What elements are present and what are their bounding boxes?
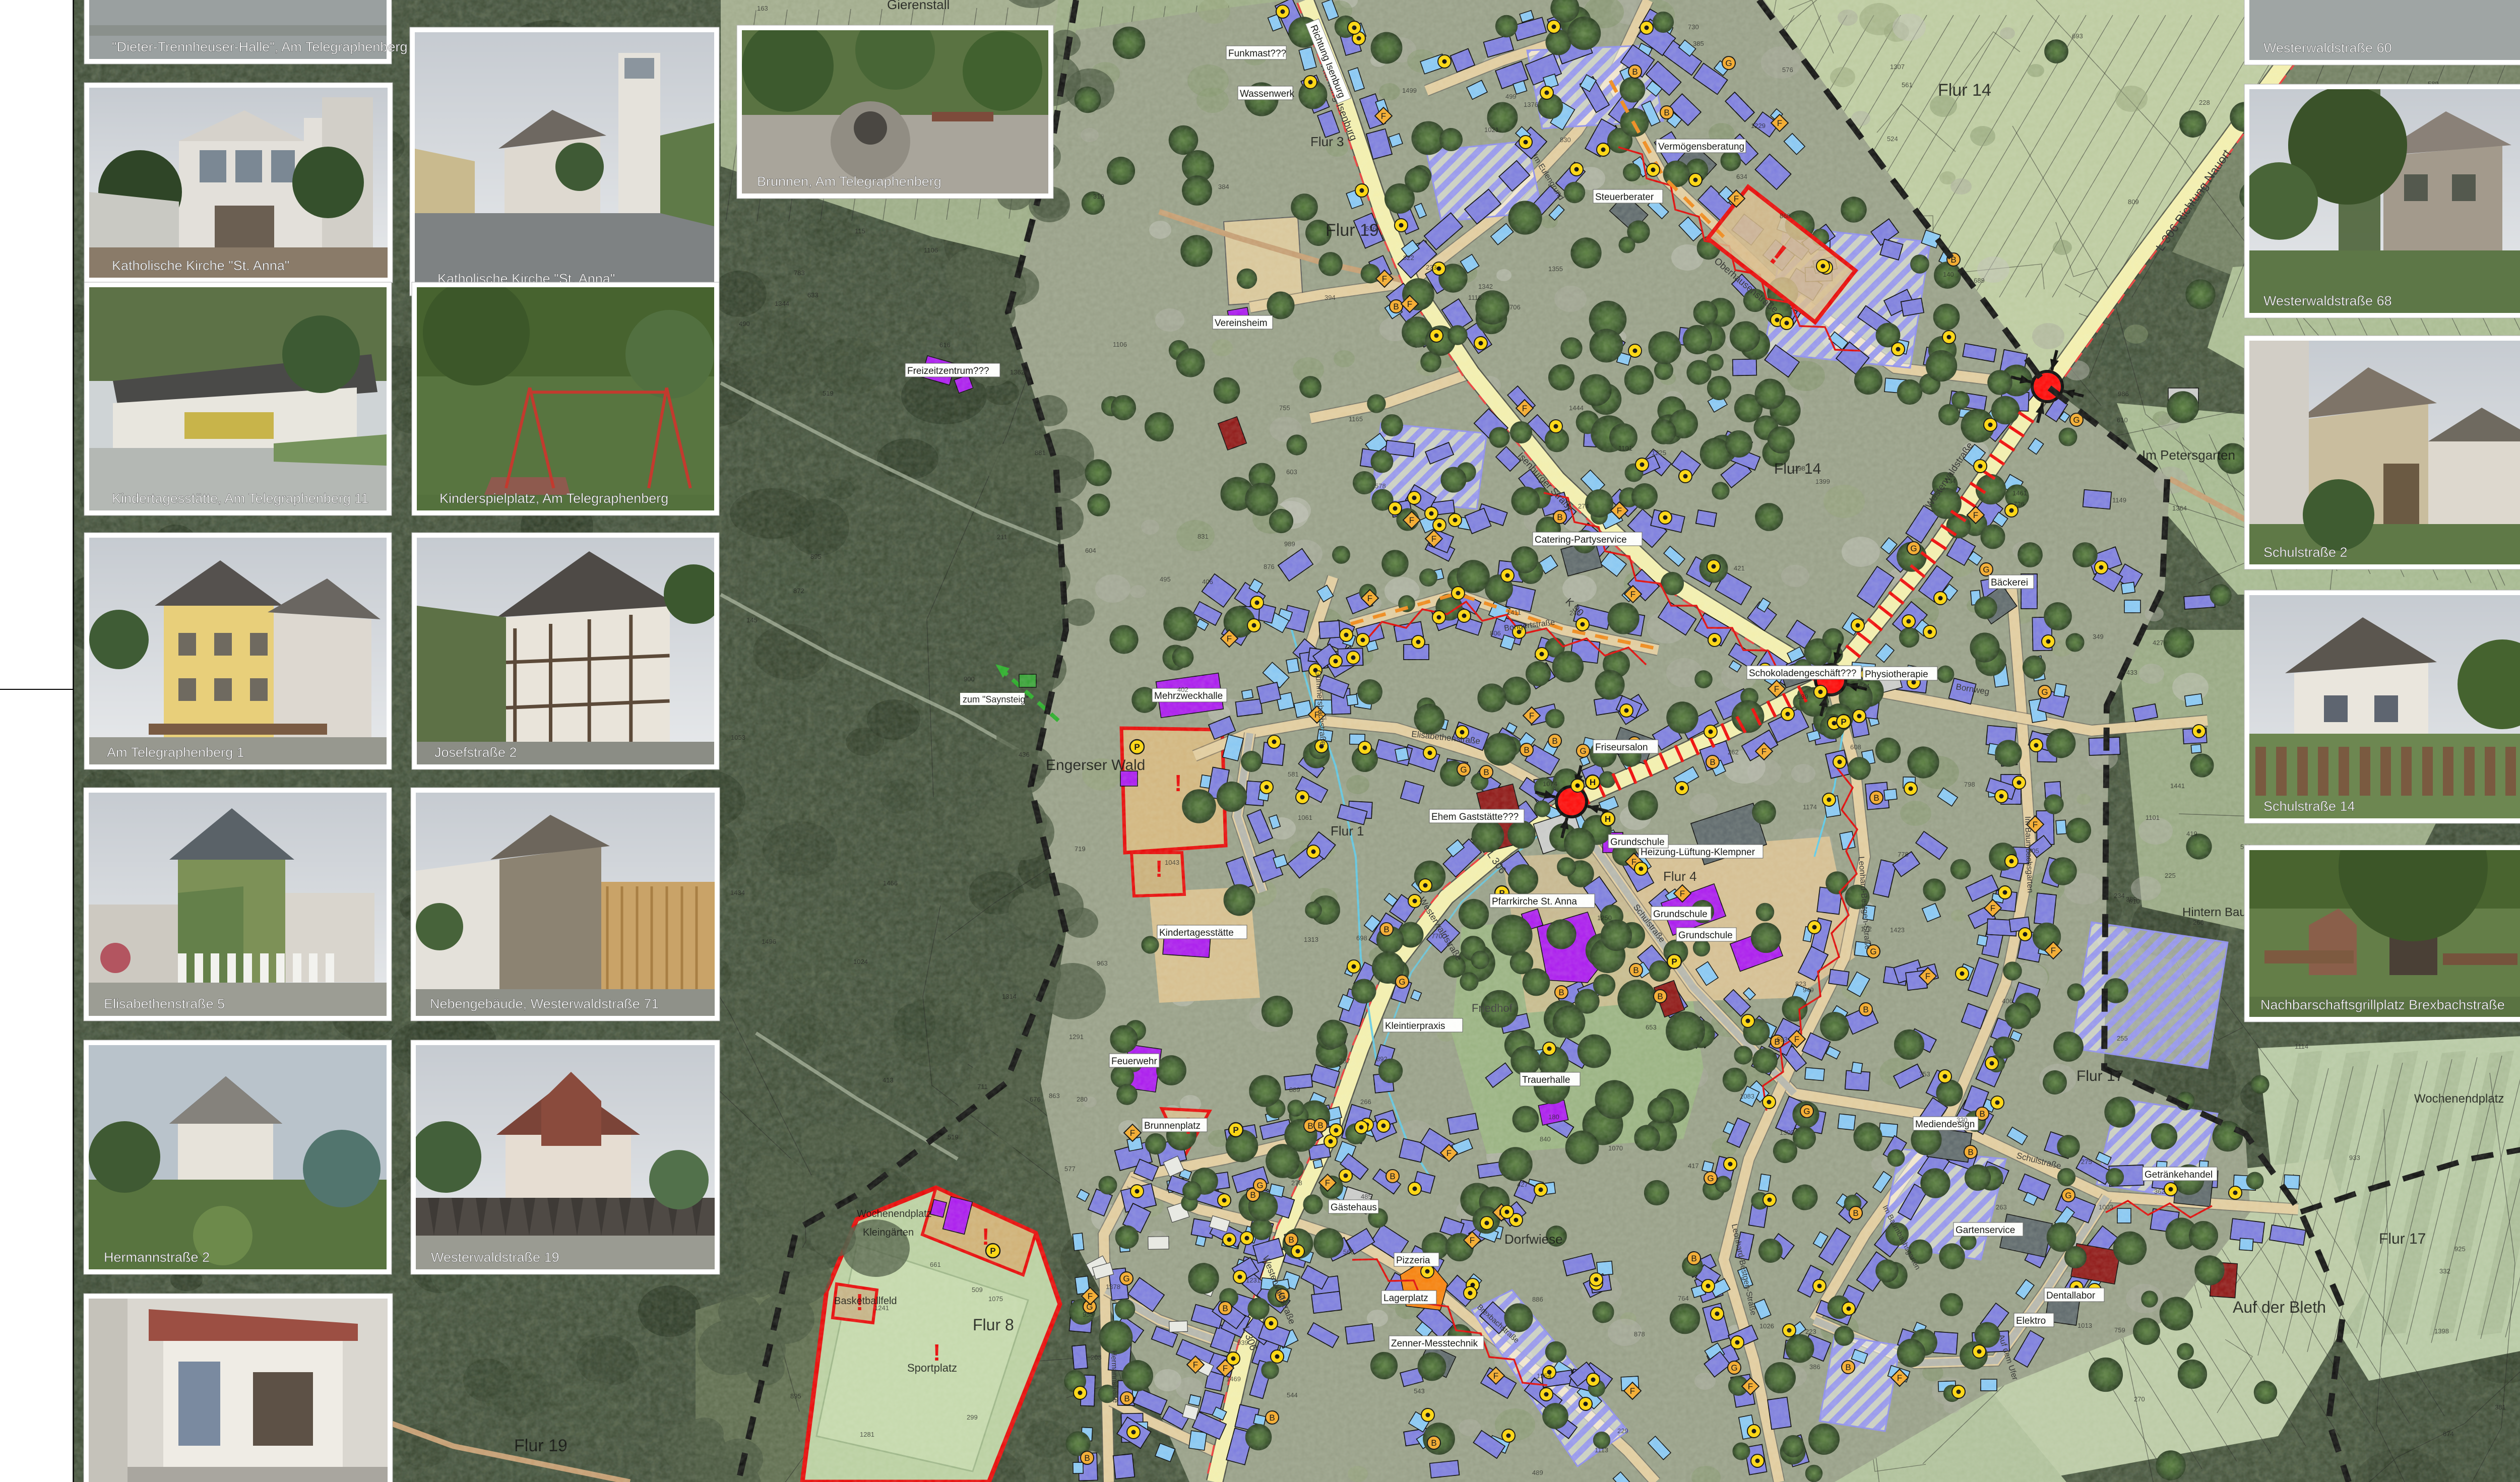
svg-text:"Dieter-Trennheuser-Halle", Am: "Dieter-Trennheuser-Halle", Am Telegraph… <box>112 39 407 54</box>
svg-text:Josefstraße 2: Josefstraße 2 <box>434 745 517 760</box>
svg-text:Am Telegraphenberg 1: Am Telegraphenberg 1 <box>107 745 244 760</box>
svg-text:Schulstraße 2: Schulstraße 2 <box>2263 545 2348 560</box>
svg-text:Hermannstraße 2: Hermannstraße 2 <box>104 1250 210 1265</box>
svg-text:Elisabethenstraße 5: Elisabethenstraße 5 <box>104 996 225 1011</box>
svg-text:Kinderspielplatz, Am Telegraph: Kinderspielplatz, Am Telegraphenberg <box>439 491 668 506</box>
svg-text:Westerwaldstraße 19: Westerwaldstraße 19 <box>431 1250 559 1265</box>
svg-text:Nebengebäude, Westerwaldstraße: Nebengebäude, Westerwaldstraße 71 <box>430 996 659 1011</box>
svg-text:Brunnen, Am Telegraphenberg: Brunnen, Am Telegraphenberg <box>757 174 941 189</box>
svg-text:Schulstraße 14: Schulstraße 14 <box>2263 799 2355 814</box>
svg-text:Katholische Kirche "St. Anna": Katholische Kirche "St. Anna" <box>112 258 289 273</box>
svg-text:Nachbarschaftsgrillplatz Brexb: Nachbarschaftsgrillplatz Brexbachstraße <box>2260 997 2505 1012</box>
svg-text:Westerwaldstraße 60: Westerwaldstraße 60 <box>2263 40 2392 55</box>
svg-text:Westerwaldstraße 68: Westerwaldstraße 68 <box>2263 293 2392 308</box>
svg-text:Kindertagesstätte, Am Telegrap: Kindertagesstätte, Am Telegraphenberg 11 <box>112 491 368 506</box>
